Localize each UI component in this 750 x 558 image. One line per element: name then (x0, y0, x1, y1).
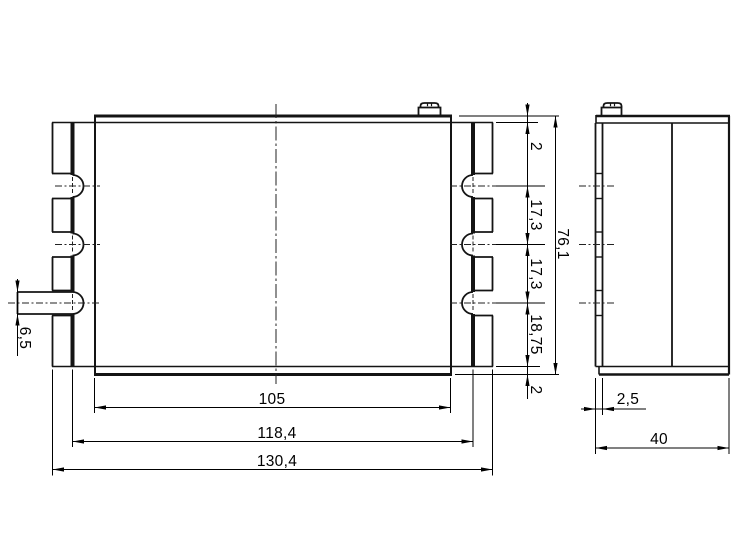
arrowhead (481, 467, 493, 471)
dim-chain-right: 2 17,3 17,3 18,75 2 (525, 103, 544, 399)
front-view (8, 103, 545, 384)
side-outline (596, 115, 731, 375)
arrowhead (525, 105, 529, 117)
dim-text-hole-pitch-2: 17,3 (527, 258, 544, 289)
arrowhead (525, 245, 529, 257)
arrowhead (525, 186, 529, 198)
dim-text-mount-width: 118,4 (257, 425, 296, 442)
arrowhead (15, 314, 19, 326)
arrowhead (584, 407, 596, 411)
arrowhead (525, 355, 529, 367)
dimensions: 2 17,3 17,3 18,75 2 76,1 6,5 105 (15, 103, 729, 476)
dim-text-hole-pitch-1: 17,3 (527, 199, 544, 230)
dim-flange-thickness: 2,5 (581, 391, 646, 411)
dim-text-depth: 40 (650, 431, 668, 448)
dim-mount-width: 118,4 (73, 425, 474, 444)
arrowhead (596, 446, 608, 450)
arrowhead (525, 292, 529, 304)
dim-text-hole-to-bottom: 18,75 (527, 314, 544, 354)
arrowhead (525, 303, 529, 315)
side-slot-centerlines (579, 186, 614, 303)
arrowhead (95, 405, 107, 409)
dim-text-flange-thickness: 2,5 (617, 391, 639, 408)
arrowhead (603, 407, 615, 411)
arrowhead (15, 281, 19, 293)
screw-head-side (602, 103, 622, 115)
screw-head-front (419, 103, 441, 115)
arrowhead (525, 233, 529, 245)
arrowhead (525, 375, 529, 387)
dim-total-width: 130,4 (53, 453, 493, 472)
arrowhead (553, 116, 557, 128)
dim-text-pin-diameter: 6,5 (16, 327, 33, 349)
dim-depth: 40 (596, 431, 730, 450)
screw-base (419, 108, 441, 116)
dim-pin-diameter: 6,5 (15, 279, 33, 356)
arrowhead (439, 405, 451, 409)
dim-text-top-gap: 2 (527, 142, 544, 151)
dim-text-body-width: 105 (259, 391, 286, 408)
dim-total-height: 76,1 (553, 116, 571, 375)
technical-drawing-page: 2 17,3 17,3 18,75 2 76,1 6,5 105 (0, 0, 750, 558)
arrowhead (553, 363, 557, 375)
dim-text-bottom-gap: 2 (527, 386, 544, 395)
technical-drawing-canvas: 2 17,3 17,3 18,75 2 76,1 6,5 105 (0, 0, 750, 558)
arrowhead (525, 123, 529, 135)
screw-base (602, 108, 622, 116)
arrowhead (53, 467, 65, 471)
dim-text-total-width: 130,4 (257, 453, 297, 470)
side-view (579, 103, 730, 375)
arrowhead (718, 446, 730, 450)
arrowhead (73, 439, 85, 443)
dim-text-total-height: 76,1 (554, 228, 571, 259)
dim-body-width: 105 (95, 391, 451, 410)
arrowhead (462, 439, 474, 443)
front-outline (52, 115, 493, 376)
